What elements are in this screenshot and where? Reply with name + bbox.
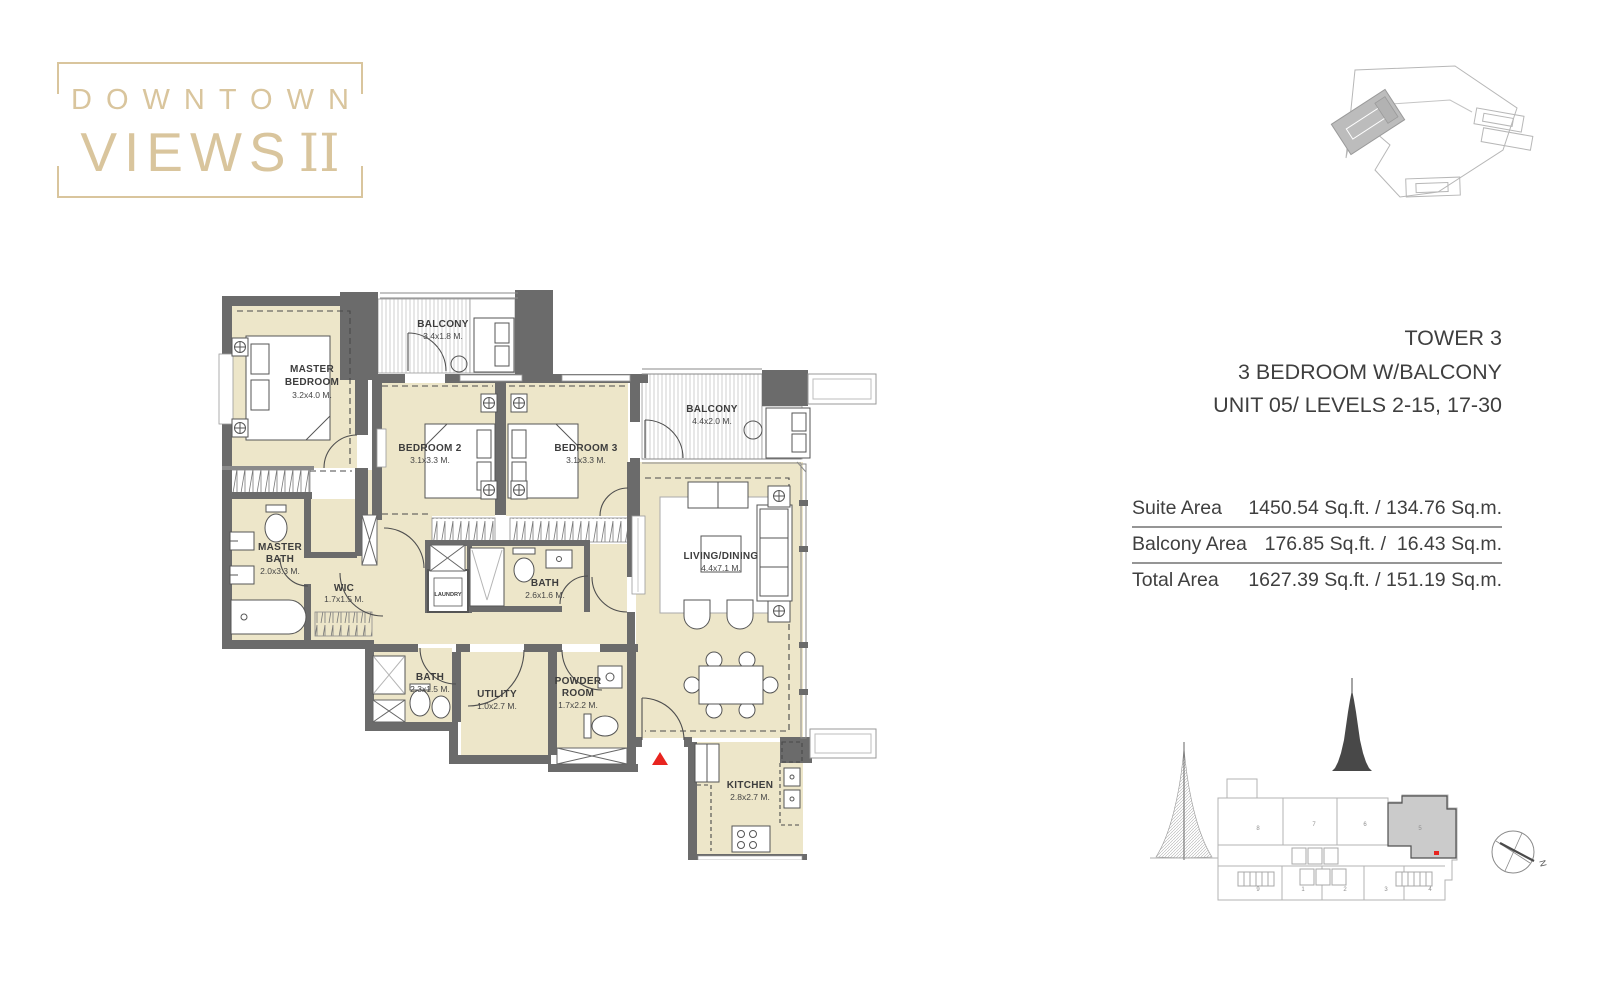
floorplan-brochure-page: DOWNTOWN VIEWSII TOWER 3 3 BEDROOM W/BAL…	[0, 0, 1600, 1007]
svg-text:UTILITY: UTILITY	[477, 689, 517, 700]
svg-text:MASTER: MASTER	[258, 542, 302, 553]
svg-text:4.4x2.0 M.: 4.4x2.0 M.	[692, 416, 732, 426]
svg-text:BEDROOM: BEDROOM	[285, 377, 339, 388]
unit-location-dot	[1434, 851, 1439, 855]
svg-text:MASTER: MASTER	[290, 364, 334, 375]
creek-tower-icon	[1150, 742, 1218, 860]
logo-border-top	[57, 62, 363, 64]
tower-title: TOWER 3	[1213, 322, 1502, 356]
svg-text:1.7x1.5 M.: 1.7x1.5 M.	[324, 594, 364, 604]
site-plan-thumbnail	[1295, 50, 1540, 220]
svg-text:2.3x1.5 M.: 2.3x1.5 M.	[410, 684, 450, 694]
svg-text:2.6x1.6 M.: 2.6x1.6 M.	[525, 590, 565, 600]
burj-khalifa-icon	[1332, 678, 1372, 771]
unit-info-block: TOWER 3 3 BEDROOM W/BALCONY UNIT 05/ LEV…	[1213, 322, 1502, 423]
unit-type: 3 BEDROOM W/BALCONY	[1213, 356, 1502, 390]
unit-levels: UNIT 05/ LEVELS 2-15, 17-30	[1213, 389, 1502, 423]
svg-text:2.0x3.3 M.: 2.0x3.3 M.	[260, 566, 300, 576]
room-label-laundry: LAUNDRY	[434, 592, 461, 598]
svg-text:2.8x2.7 M.: 2.8x2.7 M.	[730, 792, 770, 802]
svg-text:BATH: BATH	[416, 672, 444, 683]
area-label: Total Area	[1132, 569, 1219, 592]
area-label: Suite Area	[1132, 497, 1222, 520]
svg-text:BATH: BATH	[266, 554, 294, 565]
area-label: Balcony Area	[1132, 533, 1247, 556]
svg-text:3.2x4.0 M.: 3.2x4.0 M.	[292, 390, 332, 400]
svg-text:POWDER: POWDER	[555, 676, 602, 687]
floor-plate: 8 7 6 5 9 1 2 3 4	[1218, 779, 1457, 900]
area-value: 176.85 Sq.ft. / 16.43 Sq.m.	[1265, 533, 1502, 556]
downtown-views-logo: DOWNTOWN VIEWSII	[57, 62, 363, 198]
room-label-master-bedroom: MASTER BEDROOM 3.2x4.0 M.	[285, 364, 339, 400]
svg-text:BEDROOM 3: BEDROOM 3	[554, 443, 617, 454]
svg-text:BEDROOM 2: BEDROOM 2	[398, 443, 461, 454]
logo-numeral: II	[299, 124, 340, 184]
svg-text:KITCHEN: KITCHEN	[727, 780, 774, 791]
area-table: Suite Area 1450.54 Sq.ft. / 134.76 Sq.m.…	[1132, 492, 1502, 598]
table-row: Suite Area 1450.54 Sq.ft. / 134.76 Sq.m.	[1132, 492, 1502, 528]
compass-icon: N	[1492, 831, 1549, 873]
logo-border-bottom	[57, 196, 363, 198]
svg-text:3.1x3.3 M.: 3.1x3.3 M.	[566, 455, 606, 465]
site-other-towers	[1406, 108, 1533, 197]
svg-text:3.4x1.8 M.: 3.4x1.8 M.	[423, 331, 463, 341]
key-plan: 8 7 6 5 9 1 2 3 4 N	[1095, 655, 1565, 925]
site-highlighted-tower	[1331, 89, 1404, 154]
table-row: Balcony Area 176.85 Sq.ft. / 16.43 Sq.m.	[1132, 528, 1502, 564]
logo-word-views: VIEWSII	[57, 120, 363, 184]
svg-text:4.4x7.1 M.: 4.4x7.1 M.	[701, 563, 741, 573]
svg-text:LAUNDRY: LAUNDRY	[434, 592, 461, 598]
svg-text:1.0x2.7 M.: 1.0x2.7 M.	[477, 701, 517, 711]
table-row: Total Area 1627.39 Sq.ft. / 151.19 Sq.m.	[1132, 564, 1502, 598]
entrance-marker	[652, 752, 668, 765]
svg-text:WIC: WIC	[334, 583, 354, 594]
svg-text:ROOM: ROOM	[562, 688, 594, 699]
area-value: 1450.54 Sq.ft. / 134.76 Sq.m.	[1248, 497, 1502, 520]
svg-text:BALCONY: BALCONY	[686, 404, 738, 415]
floor-plan: MASTER BEDROOM 3.2x4.0 M. BALCONY 3.4x1.…	[210, 280, 910, 860]
svg-text:BALCONY: BALCONY	[417, 319, 469, 330]
area-value: 1627.39 Sq.ft. / 151.19 Sq.m.	[1248, 569, 1502, 592]
svg-text:LIVING/DINING: LIVING/DINING	[683, 551, 758, 562]
compass-north-label: N	[1537, 859, 1548, 868]
svg-text:1.7x2.2 M.: 1.7x2.2 M.	[558, 700, 598, 710]
svg-text:3.1x3.3 M.: 3.1x3.3 M.	[410, 455, 450, 465]
svg-text:BATH: BATH	[531, 578, 559, 589]
logo-word-downtown: DOWNTOWN	[57, 84, 363, 117]
